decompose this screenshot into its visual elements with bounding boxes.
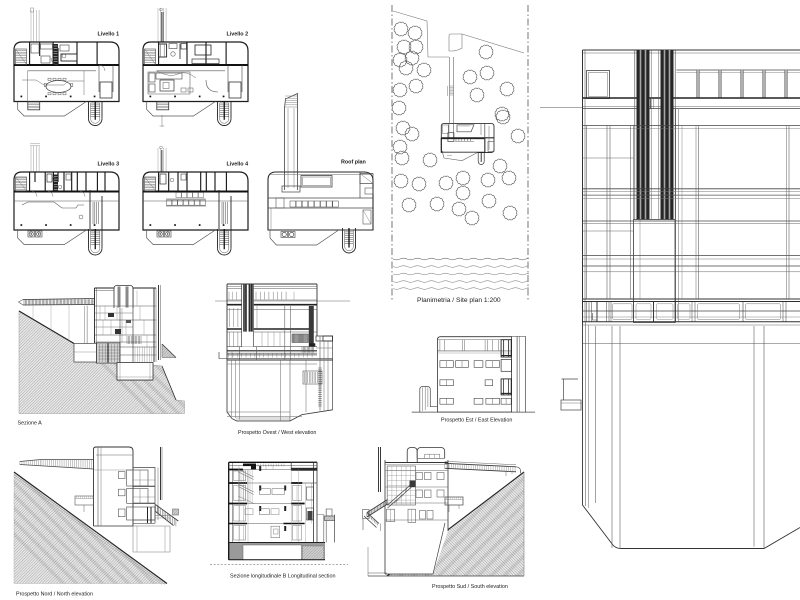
svg-text:Livello 3: Livello 3 — [98, 162, 120, 168]
svg-text:Prospetto Est / East Elevati: Prospetto Est / East Elevation — [441, 418, 512, 424]
svg-text:Planimetria / Site plan 1:20: Planimetria / Site plan 1:200 — [417, 297, 501, 304]
svg-text:Sezione A: Sezione A — [18, 421, 43, 427]
svg-text:Roof plan: Roof plan — [341, 160, 366, 166]
svg-text:Livello 1: Livello 1 — [98, 32, 120, 38]
svg-text:Prospetto Nord / North eleva: Prospetto Nord / North elevation — [16, 592, 93, 598]
svg-text:Prospetto Sud / South elevat: Prospetto Sud / South elevation — [432, 584, 508, 590]
svg-text:Prospetto Ovest / West eleva: Prospetto Ovest / West elevation — [238, 430, 316, 436]
svg-text:Livello 4: Livello 4 — [227, 162, 249, 168]
svg-text:Livello 2: Livello 2 — [227, 32, 249, 38]
svg-text:Sezione longitudinale B Long: Sezione longitudinale B Longitudinal sec… — [230, 574, 336, 580]
